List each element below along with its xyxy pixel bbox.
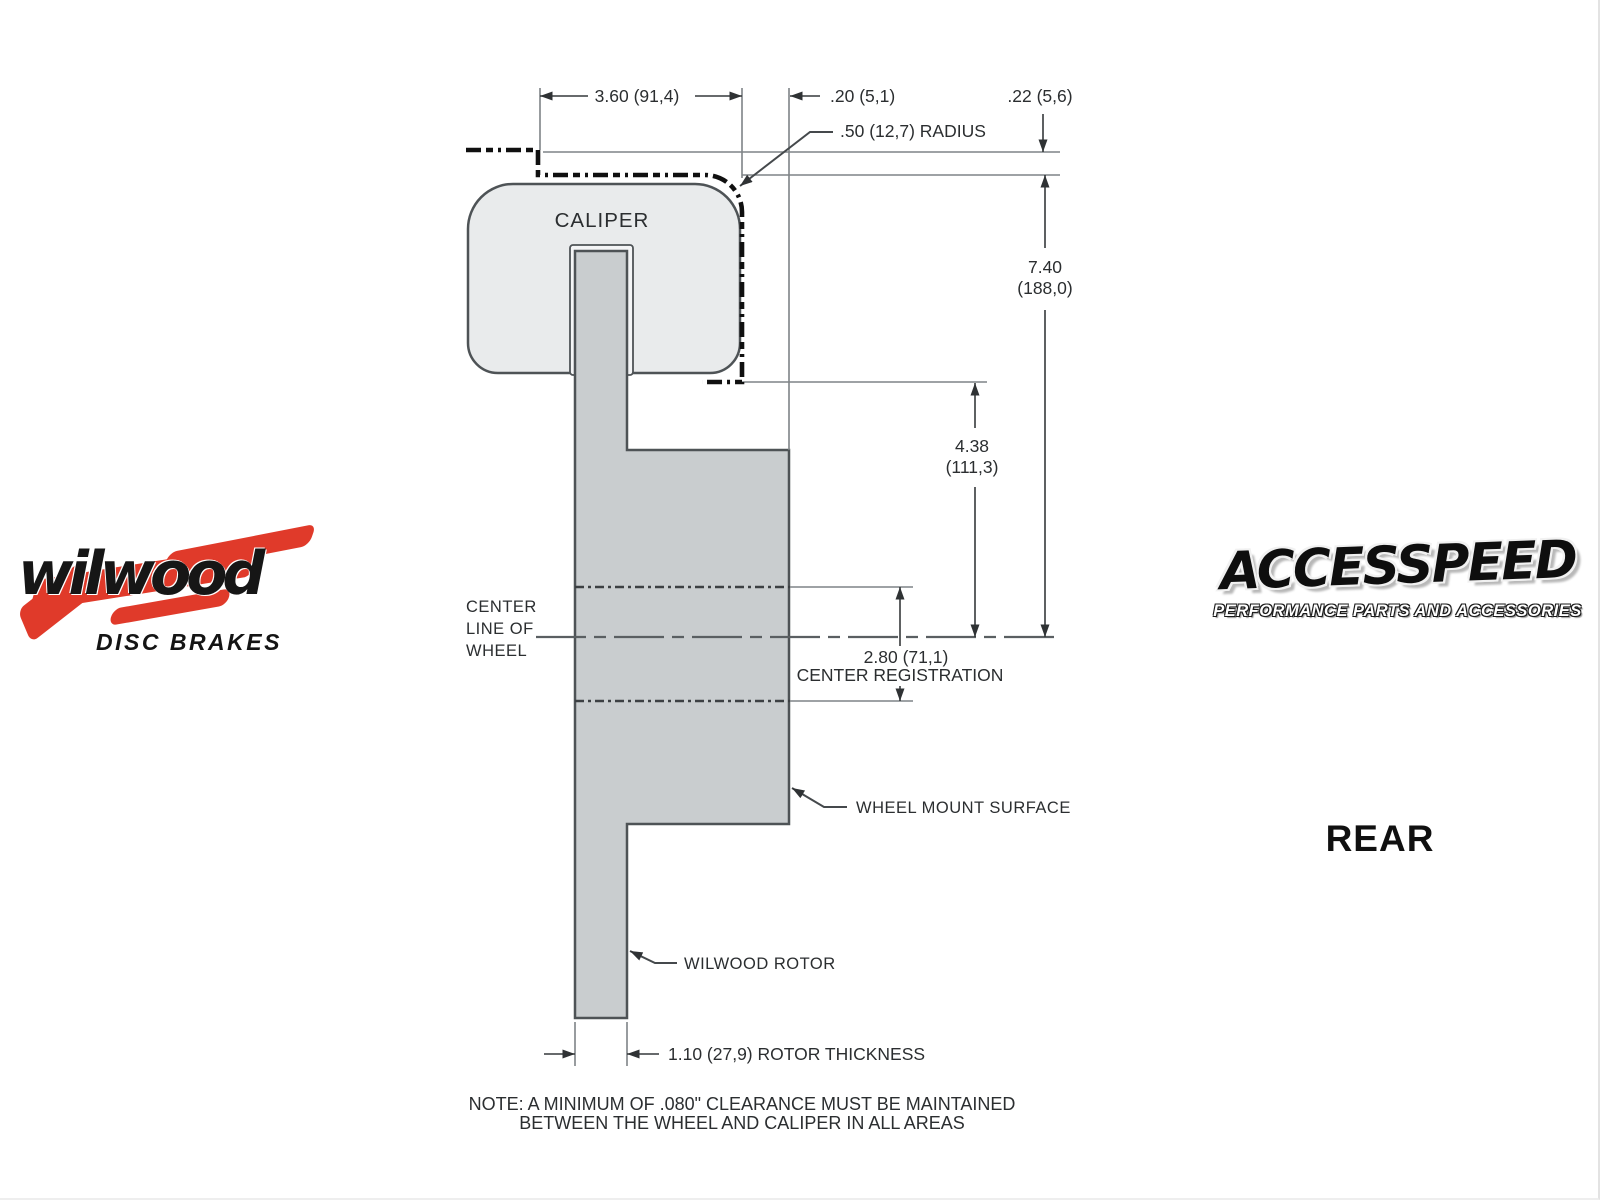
dim-mount-to-centerline-metric: (188,0) <box>1017 278 1072 298</box>
caliper-label: CALIPER <box>555 209 650 232</box>
radius-leader <box>740 132 833 186</box>
wilwood-logo: wilwood DISC BRAKES <box>14 533 329 668</box>
rotor-leader <box>630 951 677 963</box>
dim-corner-radius-text: .50 (12,7) RADIUS <box>840 121 986 141</box>
dim-caliper-to-mount-text: .20 (5,1) <box>830 86 895 106</box>
accesspeed-logo: ACCESSPEED PERFORMANCE PARTS AND ACCESSO… <box>1200 536 1595 651</box>
brake-drawing-page: 3.60 (91,4) .20 (5,1) .22 (5,6) .50 (12,… <box>0 0 1600 1200</box>
wheel-mount-surface-label: WHEEL MOUNT SURFACE <box>856 799 1071 817</box>
dim-center-registration-label: CENTER REGISTRATION <box>797 665 1004 685</box>
wilwood-rotor-label: WILWOOD ROTOR <box>684 955 836 973</box>
note-line-2: BETWEEN THE WHEEL AND CALIPER IN ALL ARE… <box>519 1113 964 1133</box>
centerline-label-1: CENTER <box>466 598 537 616</box>
centerline-label-3: WHEEL <box>466 642 527 660</box>
dim-rotor-thickness-text: 1.10 (27,9) ROTOR THICKNESS <box>668 1044 925 1064</box>
dim-mount-to-centerline-value: 7.40 <box>1028 257 1062 277</box>
wilwood-wordmark: wilwood <box>18 539 260 609</box>
dim-wheel-clearance-text: .22 (5,6) <box>1007 86 1072 106</box>
dim-center-registration-value: 2.80 (71,1) <box>864 647 949 667</box>
dim-caliper-width-text: 3.60 (91,4) <box>595 86 680 106</box>
note-line-1: NOTE: A MINIMUM OF .080" CLEARANCE MUST … <box>469 1094 1016 1114</box>
dim-caliper-bottom-metric: (111,3) <box>946 457 999 477</box>
accesspeed-wordmark: ACCESSPEED <box>1219 530 1577 602</box>
centerline-label-2: LINE OF <box>466 620 534 638</box>
wilwood-tagline: DISC BRAKES <box>96 629 282 656</box>
wheel-mount-leader <box>792 788 847 807</box>
accesspeed-tagline: PERFORMANCE PARTS AND ACCESSORIES <box>1200 602 1595 621</box>
dim-caliper-bottom-value: 4.38 <box>955 436 989 456</box>
view-label: REAR <box>1290 818 1470 860</box>
